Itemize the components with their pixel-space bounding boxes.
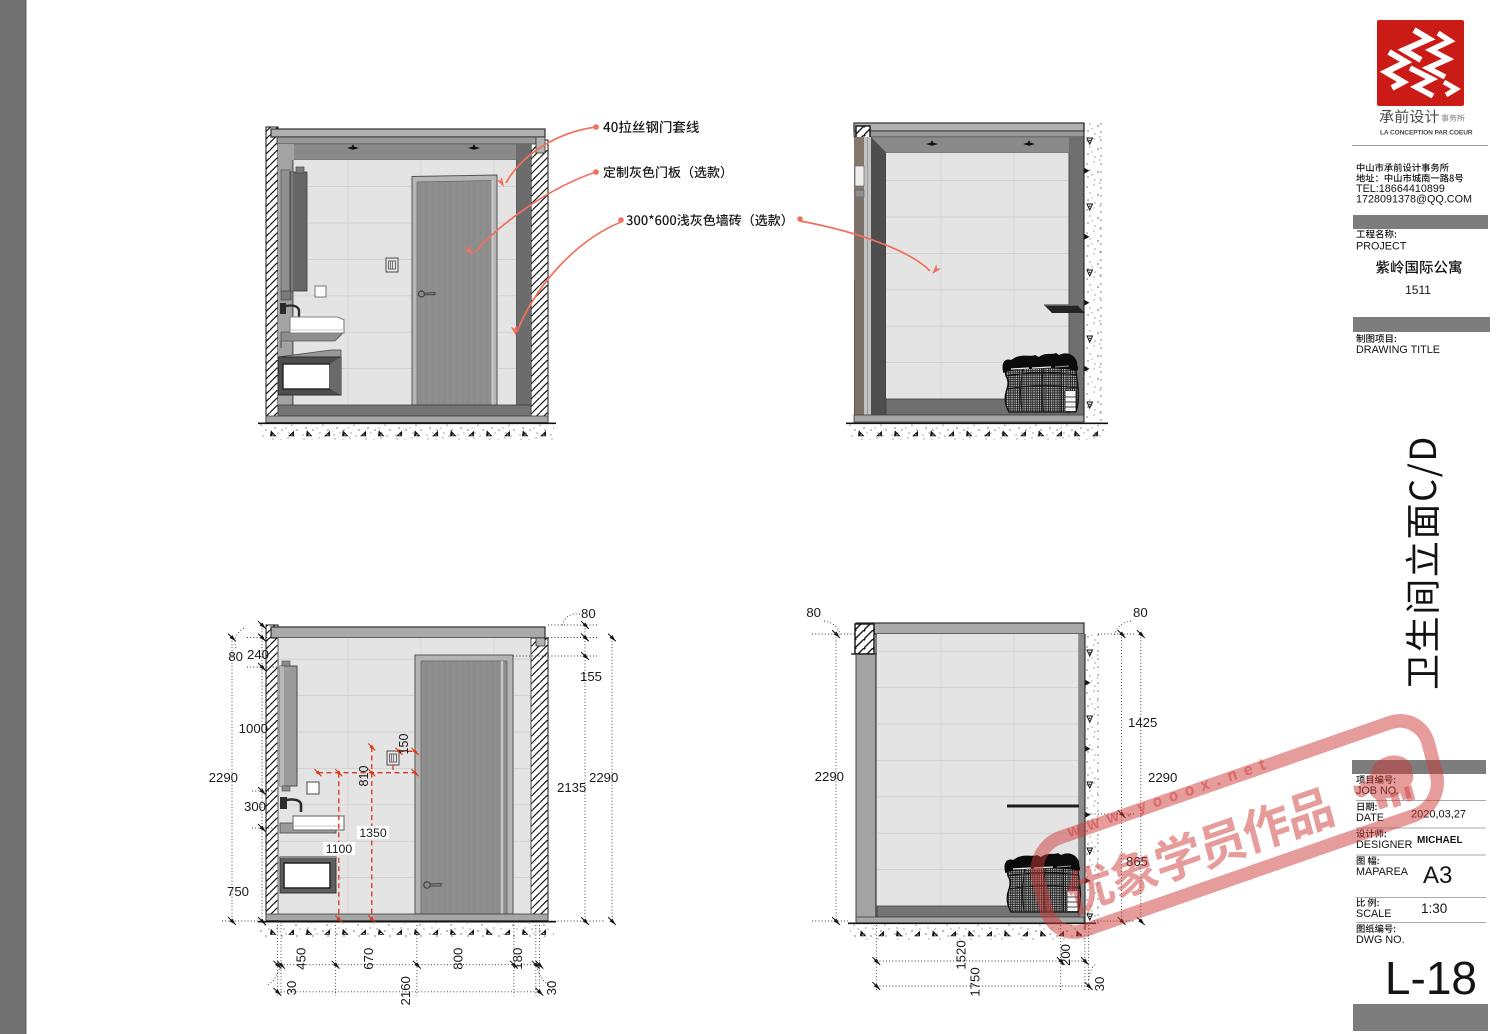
svg-text:2290: 2290 — [1148, 770, 1177, 785]
svg-text:80: 80 — [806, 605, 821, 620]
svg-text:1:30: 1:30 — [1421, 901, 1447, 916]
svg-text:200: 200 — [1058, 944, 1073, 966]
svg-text:LA CONCEPTION PAR COEUR: LA CONCEPTION PAR COEUR — [1380, 130, 1473, 137]
svg-text:30: 30 — [284, 981, 299, 996]
svg-text:MICHAEL: MICHAEL — [1417, 835, 1463, 846]
svg-text:DRAWING TITLE: DRAWING TITLE — [1356, 344, 1440, 356]
svg-text:80: 80 — [1133, 605, 1148, 620]
svg-text:155: 155 — [580, 669, 602, 684]
svg-text:670: 670 — [361, 948, 376, 970]
svg-text:1100: 1100 — [326, 842, 353, 856]
svg-text:2290: 2290 — [589, 770, 618, 785]
svg-text:A3: A3 — [1423, 862, 1452, 889]
svg-text:2160: 2160 — [398, 976, 413, 1005]
svg-text:180: 180 — [510, 948, 525, 970]
svg-text:150: 150 — [397, 734, 411, 755]
svg-text:1750: 1750 — [967, 967, 982, 996]
svg-text:2290: 2290 — [815, 769, 844, 784]
svg-text:2135: 2135 — [557, 780, 586, 795]
svg-text:80: 80 — [228, 649, 243, 664]
svg-text:30: 30 — [1092, 977, 1107, 992]
svg-text:L-18: L-18 — [1385, 952, 1477, 1004]
svg-text:1000: 1000 — [239, 721, 268, 736]
svg-text:240: 240 — [247, 647, 269, 662]
svg-text:750: 750 — [227, 884, 249, 899]
svg-text:300: 300 — [244, 799, 266, 814]
svg-text:MAPAREA: MAPAREA — [1356, 866, 1409, 878]
svg-text:450: 450 — [293, 948, 308, 970]
svg-text:800: 800 — [450, 948, 465, 970]
svg-text:1520: 1520 — [953, 940, 968, 969]
svg-text:PROJECT: PROJECT — [1356, 241, 1407, 253]
svg-text:810: 810 — [357, 766, 371, 787]
svg-text:2290: 2290 — [209, 770, 238, 785]
svg-text:SCALE: SCALE — [1356, 908, 1391, 920]
svg-text:1511: 1511 — [1405, 283, 1431, 297]
svg-text:1350: 1350 — [359, 826, 387, 840]
svg-text:80: 80 — [581, 606, 596, 621]
svg-text:1425: 1425 — [1128, 715, 1157, 730]
svg-text:DWG NO.: DWG NO. — [1356, 934, 1405, 946]
svg-text:1728091378@QQ.COM: 1728091378@QQ.COM — [1356, 194, 1472, 206]
svg-text:DESIGNER: DESIGNER — [1356, 839, 1413, 851]
